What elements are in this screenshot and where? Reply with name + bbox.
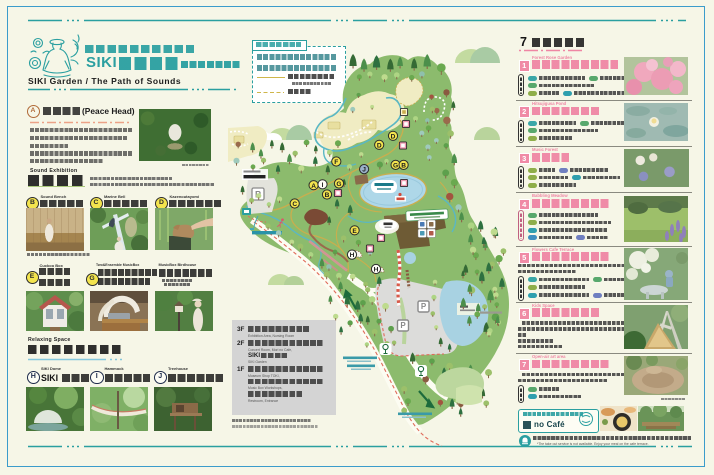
svg-text:D: D xyxy=(377,142,382,149)
svg-text:B: B xyxy=(401,163,406,170)
svg-text:I: I xyxy=(322,182,324,189)
svg-text:A: A xyxy=(311,183,316,190)
svg-text:F: F xyxy=(334,159,338,166)
svg-text:P: P xyxy=(421,302,427,311)
svg-text:B: B xyxy=(325,192,330,199)
svg-text:E: E xyxy=(352,228,357,235)
svg-text:D: D xyxy=(391,133,396,140)
svg-text:P: P xyxy=(400,321,406,330)
svg-text:G: G xyxy=(393,163,398,170)
svg-text:H: H xyxy=(350,252,355,259)
svg-text:J: J xyxy=(362,167,366,174)
svg-text:G: G xyxy=(336,181,341,188)
svg-text:C: C xyxy=(292,201,297,208)
svg-text:H: H xyxy=(374,267,379,274)
